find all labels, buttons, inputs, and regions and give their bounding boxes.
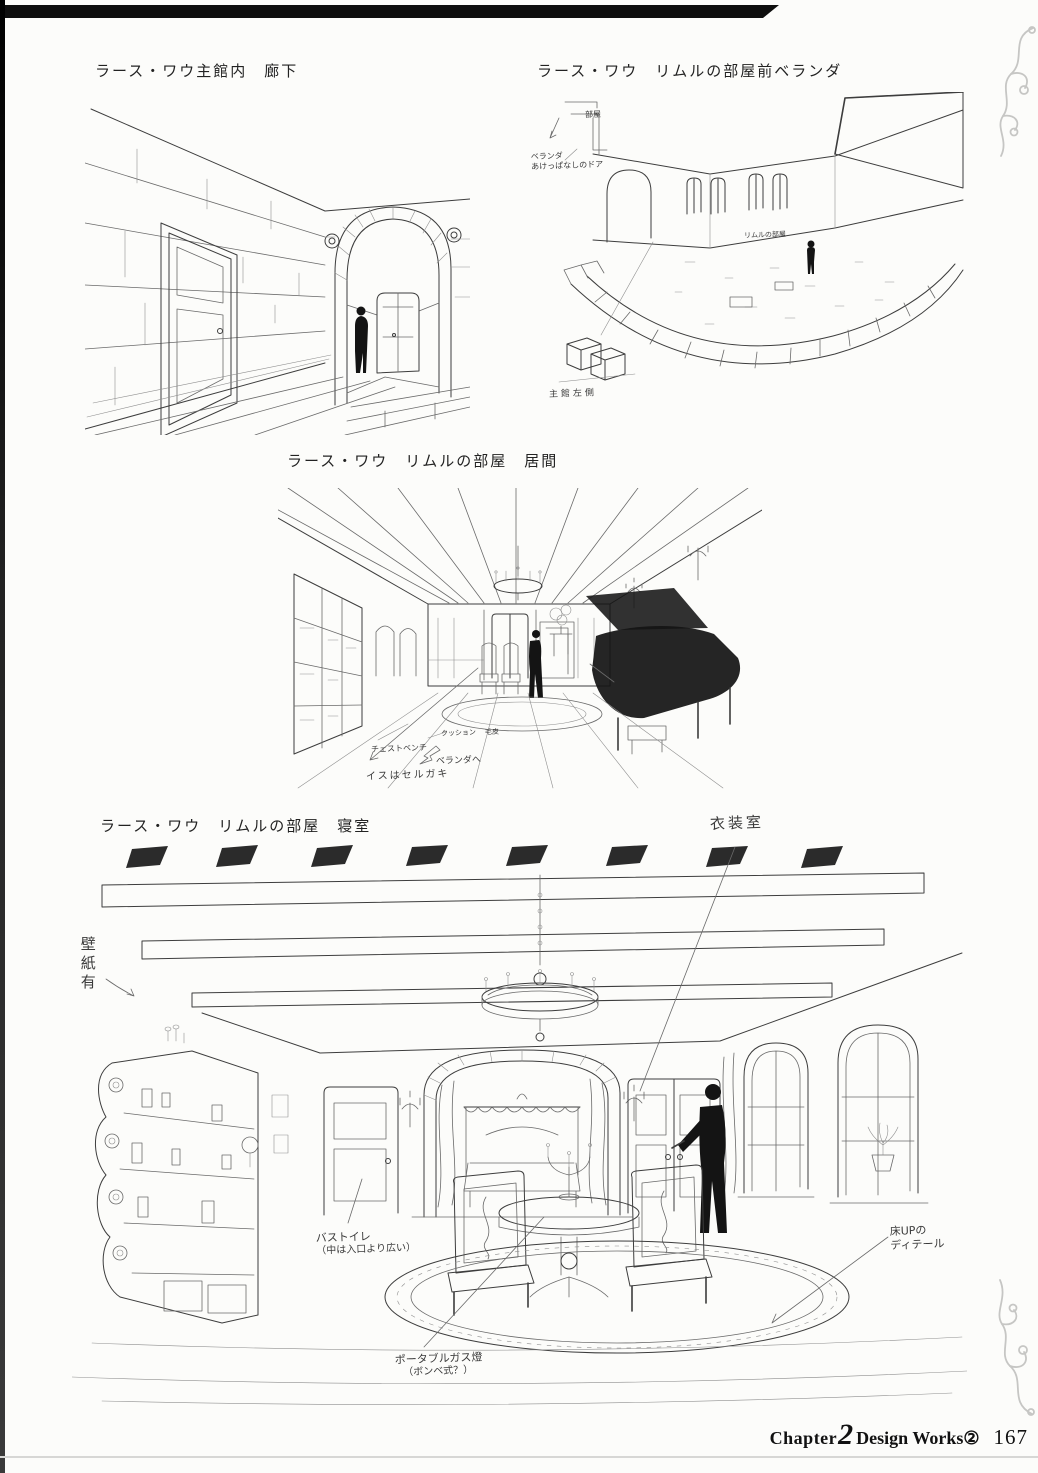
bedroom-sketch — [72, 845, 967, 1405]
footer-works-label: Design Works② — [856, 1428, 979, 1449]
veranda-detail-note: 主館左側 — [549, 388, 597, 401]
caption-bedroom: ラース・ワウ リムルの部屋 寝室 — [100, 815, 371, 836]
footer-chapter-number: 2 — [838, 1420, 853, 1450]
living-room-sketch — [278, 488, 762, 793]
veranda-plan-room-label: 部屋 — [585, 110, 601, 121]
living-cushion-label: クッション — [441, 728, 476, 738]
scan-spine-edge — [0, 0, 5, 1473]
bedroom-wallpaper-label: 壁紙有 — [78, 936, 97, 993]
bedroom-bath-note: バストイレ （中は入口より広い） — [316, 1228, 417, 1258]
scan-black-bar — [0, 5, 779, 18]
page-footer: Chapter 2 Design Works② 167 — [770, 1420, 1028, 1450]
ornament-top-right-icon — [975, 24, 1037, 164]
ornament-bottom-right-icon — [972, 1272, 1036, 1417]
bedroom-floor-detail-line2: ディテール — [890, 1237, 945, 1253]
bedroom-floor-detail-note: 床UPの ディテール — [890, 1223, 945, 1252]
caption-veranda: ラース・ワウ リムルの部屋前ベランダ — [537, 60, 842, 81]
veranda-sketch — [535, 92, 965, 427]
corridor-sketch — [85, 105, 470, 435]
caption-living-room: ラース・ワウ リムルの部屋 居間 — [287, 450, 558, 471]
veranda-courtyard-label: リムルの部屋 — [744, 230, 786, 240]
artbook-page: ラース・ワウ主館内 廊下 — [0, 0, 1038, 1473]
living-to-veranda-label: ベランダへ — [436, 755, 481, 768]
living-fur-label: 毛皮 — [485, 728, 499, 737]
footer-page-number: 167 — [994, 1425, 1029, 1450]
bedroom-dressing-room-label: 衣装室 — [710, 813, 765, 834]
footer-rule — [0, 1456, 1038, 1458]
veranda-door-note: ベランダ あけっぱなしのドア — [531, 150, 604, 173]
caption-corridor: ラース・ワウ主館内 廊下 — [95, 60, 298, 81]
living-chest-bench-label: チェストベンチ — [371, 743, 427, 755]
bedroom-gas-lamp-note: ポータブルガス燈 （ボンベ式？） — [395, 1350, 484, 1379]
footer-chapter-label: Chapter — [770, 1428, 838, 1449]
